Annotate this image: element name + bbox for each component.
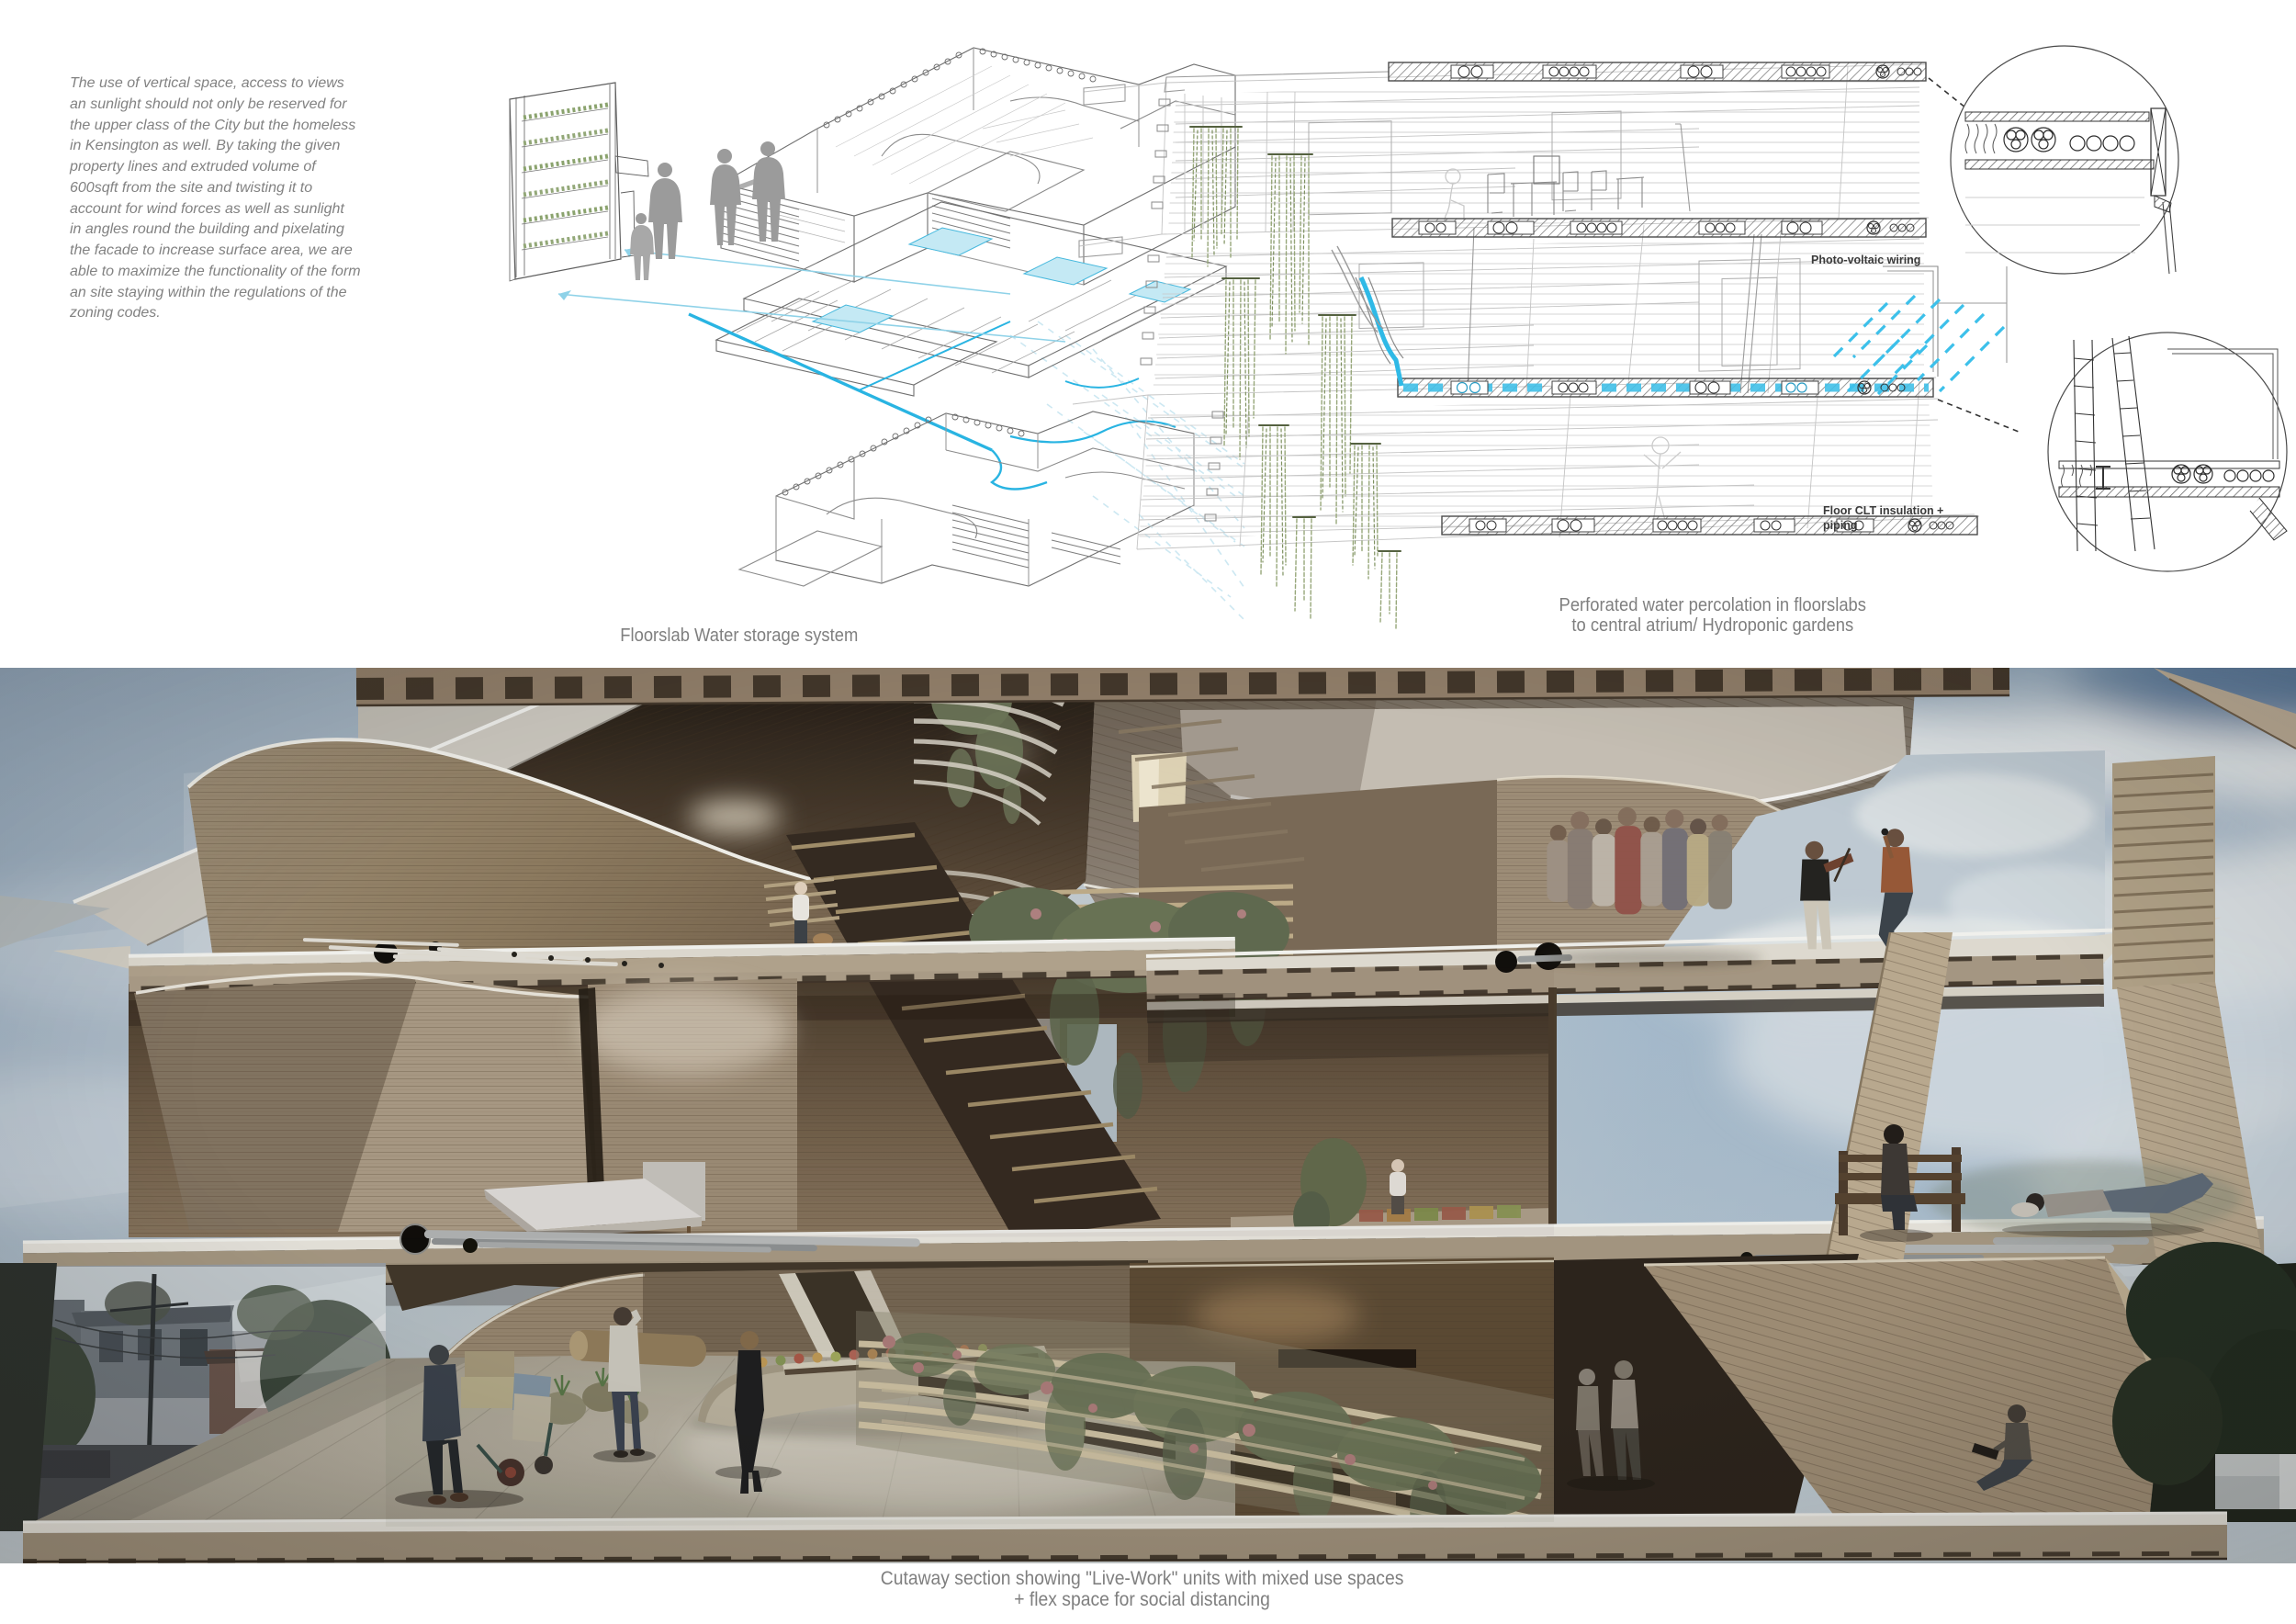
svg-text:Floor CLT insulation +: Floor CLT insulation + [1823, 504, 1943, 517]
svg-text:piping: piping [1823, 519, 1858, 532]
svg-text:Photo-voltaic wiring: Photo-voltaic wiring [1811, 254, 1920, 266]
